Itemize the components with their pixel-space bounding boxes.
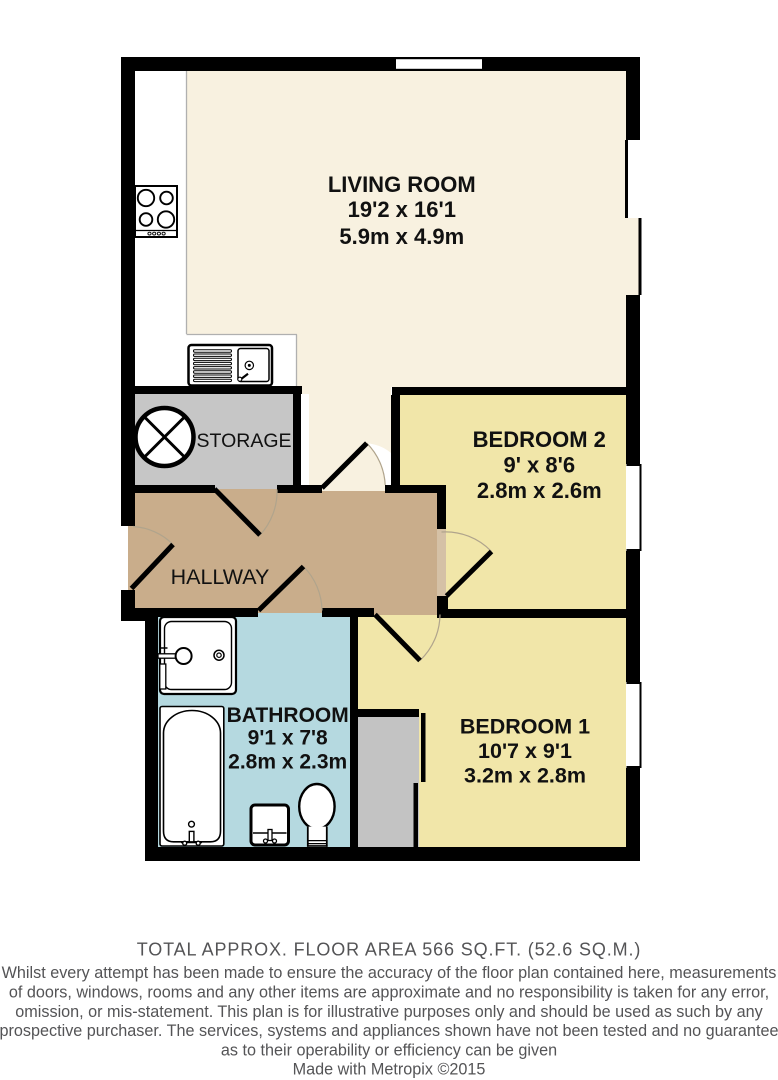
svg-text:STORAGE: STORAGE	[197, 430, 292, 452]
svg-text:19'2 x 16'1: 19'2 x 16'1	[348, 197, 456, 222]
svg-text:BEDROOM 2: BEDROOM 2	[473, 427, 606, 452]
svg-text:10'7 x 9'1: 10'7 x 9'1	[478, 739, 572, 763]
svg-text:9'1 x 7'8: 9'1 x 7'8	[248, 727, 328, 750]
svg-text:BATHROOM: BATHROOM	[227, 704, 349, 727]
svg-text:9' x 8'6: 9' x 8'6	[503, 453, 575, 478]
svg-text:of doors, windows, rooms and a: of doors, windows, rooms and any other i…	[9, 984, 769, 1002]
svg-text:as to their operability or eff: as to their operability or efficiency ca…	[221, 1041, 557, 1059]
svg-text:2.8m x 2.6m: 2.8m x 2.6m	[477, 478, 602, 503]
svg-text:TOTAL APPROX. FLOOR AREA 566 S: TOTAL APPROX. FLOOR AREA 566 SQ.FT. (52.…	[137, 940, 642, 960]
svg-text:Made with Metropix ©2015: Made with Metropix ©2015	[293, 1061, 486, 1079]
svg-text:2.8m x 2.3m: 2.8m x 2.3m	[228, 751, 347, 774]
svg-text:5.9m x 4.9m: 5.9m x 4.9m	[339, 224, 464, 249]
svg-text:LIVING ROOM: LIVING ROOM	[328, 172, 476, 197]
svg-text:omission, or mis-statement. Th: omission, or mis-statement. This plan is…	[15, 1003, 763, 1021]
svg-text:HALLWAY: HALLWAY	[171, 565, 270, 589]
svg-text:Whilst every attempt has been: Whilst every attempt has been made to en…	[2, 964, 777, 982]
svg-text:prospective purchaser. The ser: prospective purchaser. The services, sys…	[0, 1022, 778, 1040]
svg-text:BEDROOM 1: BEDROOM 1	[460, 715, 590, 739]
svg-text:3.2m x 2.8m: 3.2m x 2.8m	[464, 764, 586, 788]
